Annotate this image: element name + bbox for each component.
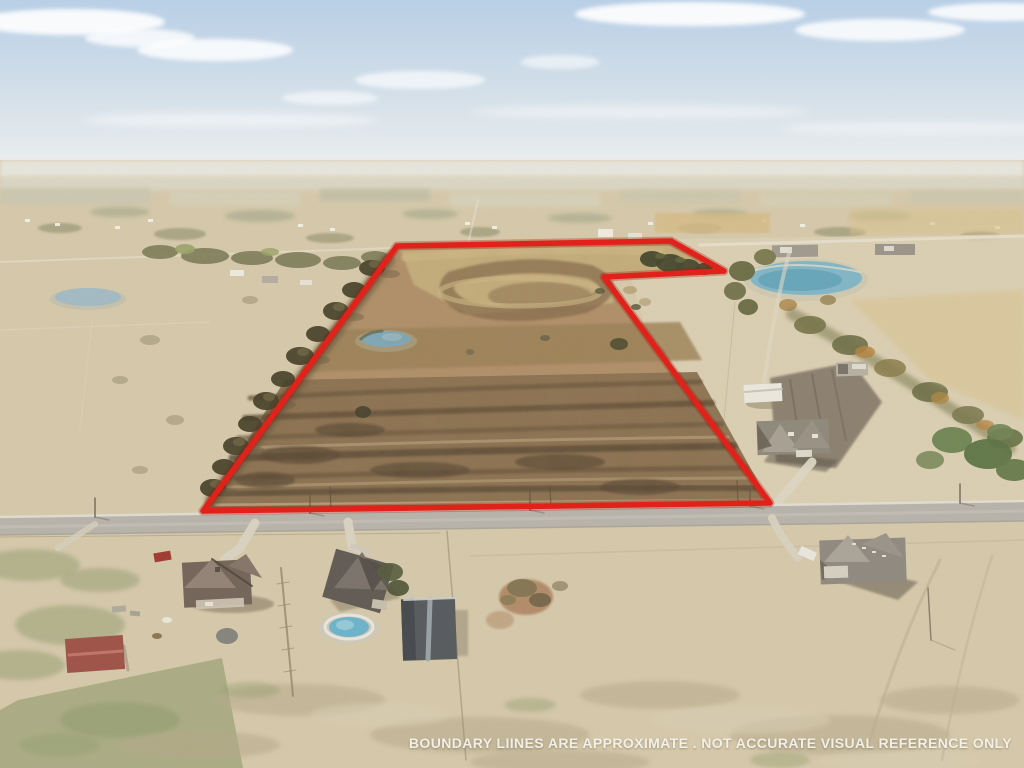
aerial-photo: BOUNDARY LIINES ARE APPROXIMATE . NOT AC… bbox=[0, 0, 1024, 768]
cloud bbox=[355, 71, 485, 89]
photo-grain bbox=[0, 160, 1024, 768]
cloud bbox=[520, 55, 600, 69]
aerial-photo-canvas bbox=[0, 0, 1024, 768]
cloud bbox=[80, 113, 380, 127]
cloud bbox=[85, 29, 195, 47]
cloud bbox=[470, 105, 810, 119]
cloud bbox=[795, 19, 965, 41]
disclaimer-text: BOUNDARY LIINES ARE APPROXIMATE . NOT AC… bbox=[409, 735, 1012, 751]
cloud bbox=[282, 91, 378, 105]
cloud bbox=[575, 2, 805, 26]
